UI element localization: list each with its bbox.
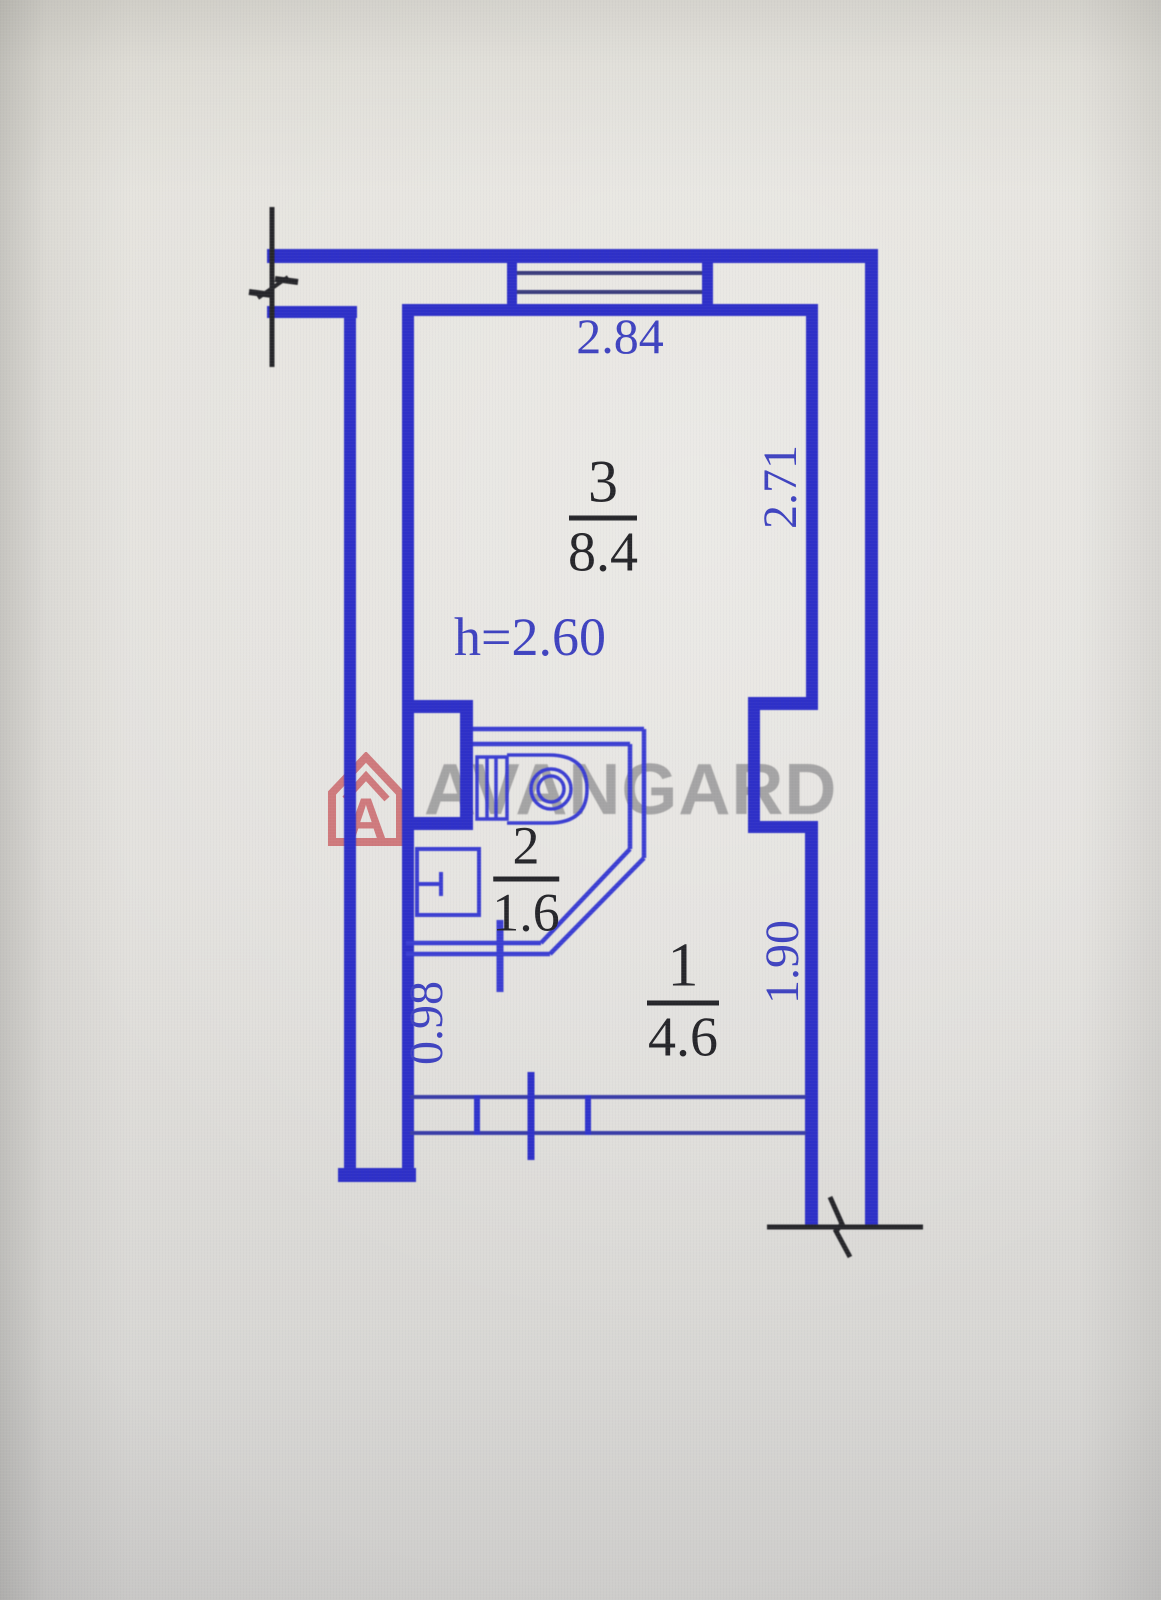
room3-number: 3 xyxy=(588,452,618,512)
ceiling-height-note: h=2.60 xyxy=(454,610,606,664)
dimension-room3-depth: 2.71 xyxy=(757,445,805,529)
room3-label: 3 8.4 xyxy=(568,452,638,581)
room2-number: 2 xyxy=(513,819,540,873)
room3-area: 8.4 xyxy=(568,525,638,581)
dimension-hall-depth: 1.90 xyxy=(759,920,807,1004)
load-bearing-walls xyxy=(267,249,878,1229)
room1-number: 1 xyxy=(668,935,699,997)
room1-label: 1 4.6 xyxy=(647,935,719,1066)
fixture-box-icon xyxy=(417,849,479,915)
dimension-room3-width: 2.84 xyxy=(576,311,664,361)
entry-wall-door-opening xyxy=(410,1072,806,1160)
room2-fraction-bar xyxy=(493,877,559,882)
break-mark-top-left-icon xyxy=(249,207,298,367)
floorplan-photo: A AVANGARD xyxy=(0,0,1161,1600)
room3-fraction-bar xyxy=(569,516,637,521)
floorplan-drawing xyxy=(0,0,1161,1600)
break-mark-bottom-right-icon xyxy=(767,1197,923,1257)
room1-area: 4.6 xyxy=(648,1010,718,1066)
toilet-icon xyxy=(477,755,587,823)
room1-fraction-bar xyxy=(647,1001,719,1006)
dimension-corridor-width: 0.98 xyxy=(403,981,451,1065)
room2-area: 1.6 xyxy=(492,886,560,940)
room2-label: 2 1.6 xyxy=(492,819,560,940)
window-icon xyxy=(507,262,713,307)
